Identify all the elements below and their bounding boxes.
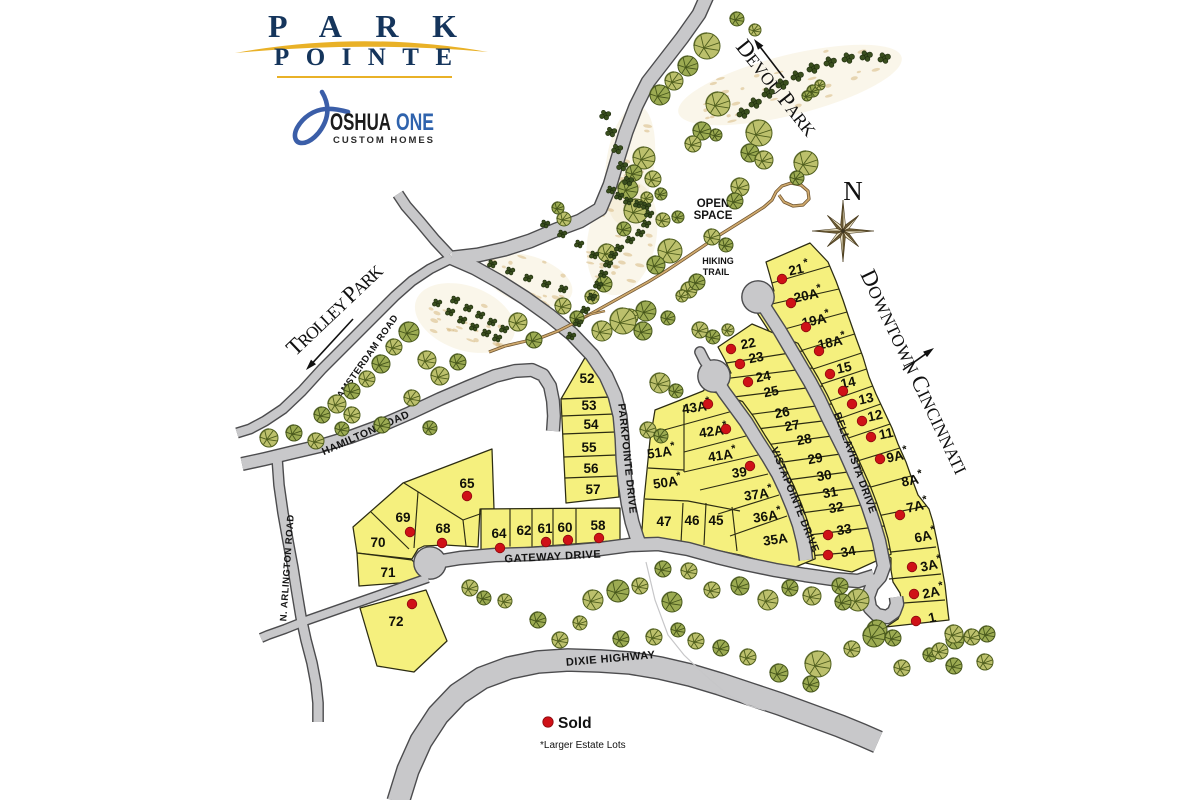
svg-text:53: 53 <box>581 398 597 413</box>
svg-text:54: 54 <box>583 417 599 432</box>
svg-text:12: 12 <box>866 407 884 425</box>
svg-text:64: 64 <box>491 526 507 541</box>
svg-text:30: 30 <box>815 467 833 485</box>
svg-text:29: 29 <box>806 450 824 468</box>
svg-text:57: 57 <box>585 482 600 497</box>
svg-text:60: 60 <box>557 520 572 535</box>
svg-text:Sold: Sold <box>558 715 592 732</box>
svg-text:72: 72 <box>388 614 403 629</box>
svg-text:TRAIL: TRAIL <box>703 267 730 277</box>
svg-text:71: 71 <box>380 565 396 580</box>
svg-text:46: 46 <box>684 513 700 528</box>
svg-text:ONE: ONE <box>396 109 434 136</box>
svg-text:OPEN: OPEN <box>697 198 730 210</box>
svg-text:OSHUA: OSHUA <box>330 109 391 136</box>
svg-text:32: 32 <box>827 499 845 517</box>
svg-text:HIKING: HIKING <box>702 256 734 266</box>
svg-text:*Larger Estate Lots: *Larger Estate Lots <box>540 740 626 751</box>
svg-text:CUSTOM HOMES: CUSTOM HOMES <box>333 135 433 146</box>
svg-text:70: 70 <box>370 535 385 550</box>
svg-text:52: 52 <box>579 371 594 386</box>
svg-text:47: 47 <box>656 514 671 529</box>
svg-text:61: 61 <box>537 521 553 536</box>
svg-text:45: 45 <box>708 513 724 528</box>
svg-text:N: N <box>843 176 863 206</box>
svg-text:56: 56 <box>583 461 599 476</box>
svg-text:55: 55 <box>581 440 597 455</box>
svg-text:62: 62 <box>516 523 531 538</box>
svg-text:SPACE: SPACE <box>694 210 733 222</box>
svg-text:69: 69 <box>395 510 410 525</box>
svg-text:58: 58 <box>590 518 606 533</box>
svg-text:65: 65 <box>459 476 475 491</box>
svg-text:27: 27 <box>783 417 801 435</box>
svg-text:68: 68 <box>435 521 451 536</box>
